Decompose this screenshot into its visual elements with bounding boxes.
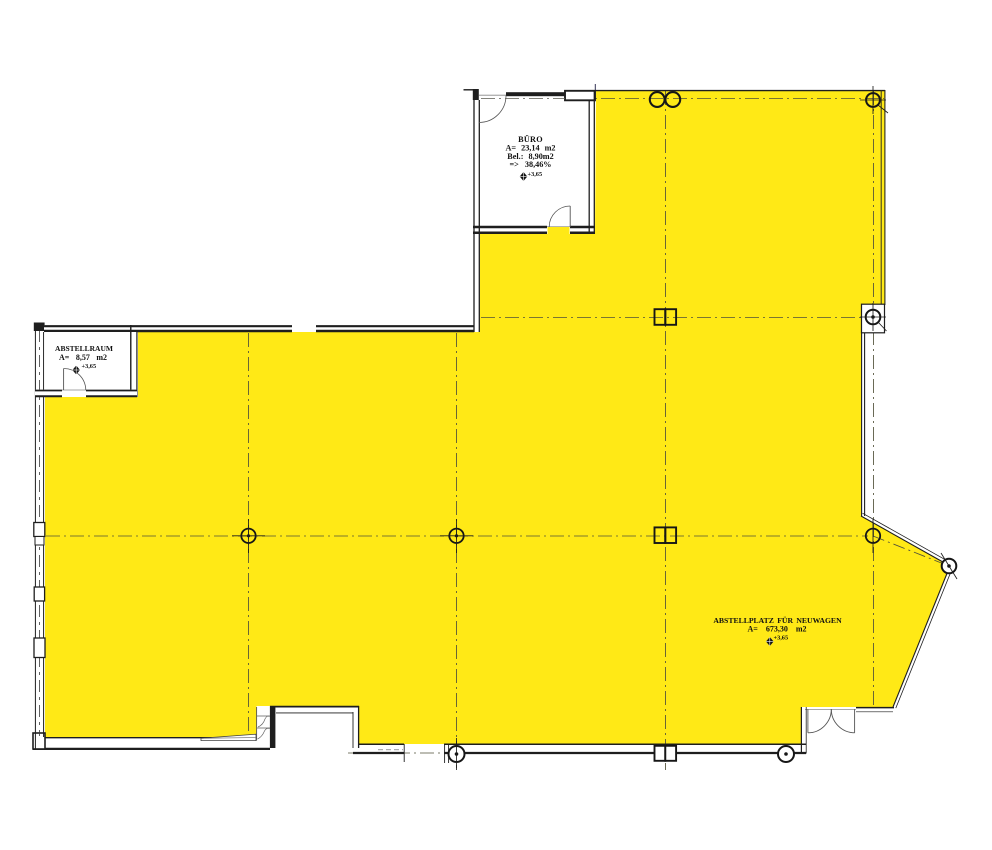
svg-text:+3,65: +3,65 bbox=[528, 171, 543, 178]
svg-text:A= 8,57 m2: A= 8,57 m2 bbox=[59, 353, 107, 362]
svg-text:A= 673,30 m2: A= 673,30 m2 bbox=[748, 625, 807, 634]
svg-text:+3,65: +3,65 bbox=[82, 363, 97, 370]
svg-text:+3,65: +3,65 bbox=[774, 634, 789, 641]
svg-text:ABSTELLRAUM: ABSTELLRAUM bbox=[55, 344, 113, 353]
svg-text:=> 38,46%: => 38,46% bbox=[510, 160, 552, 169]
